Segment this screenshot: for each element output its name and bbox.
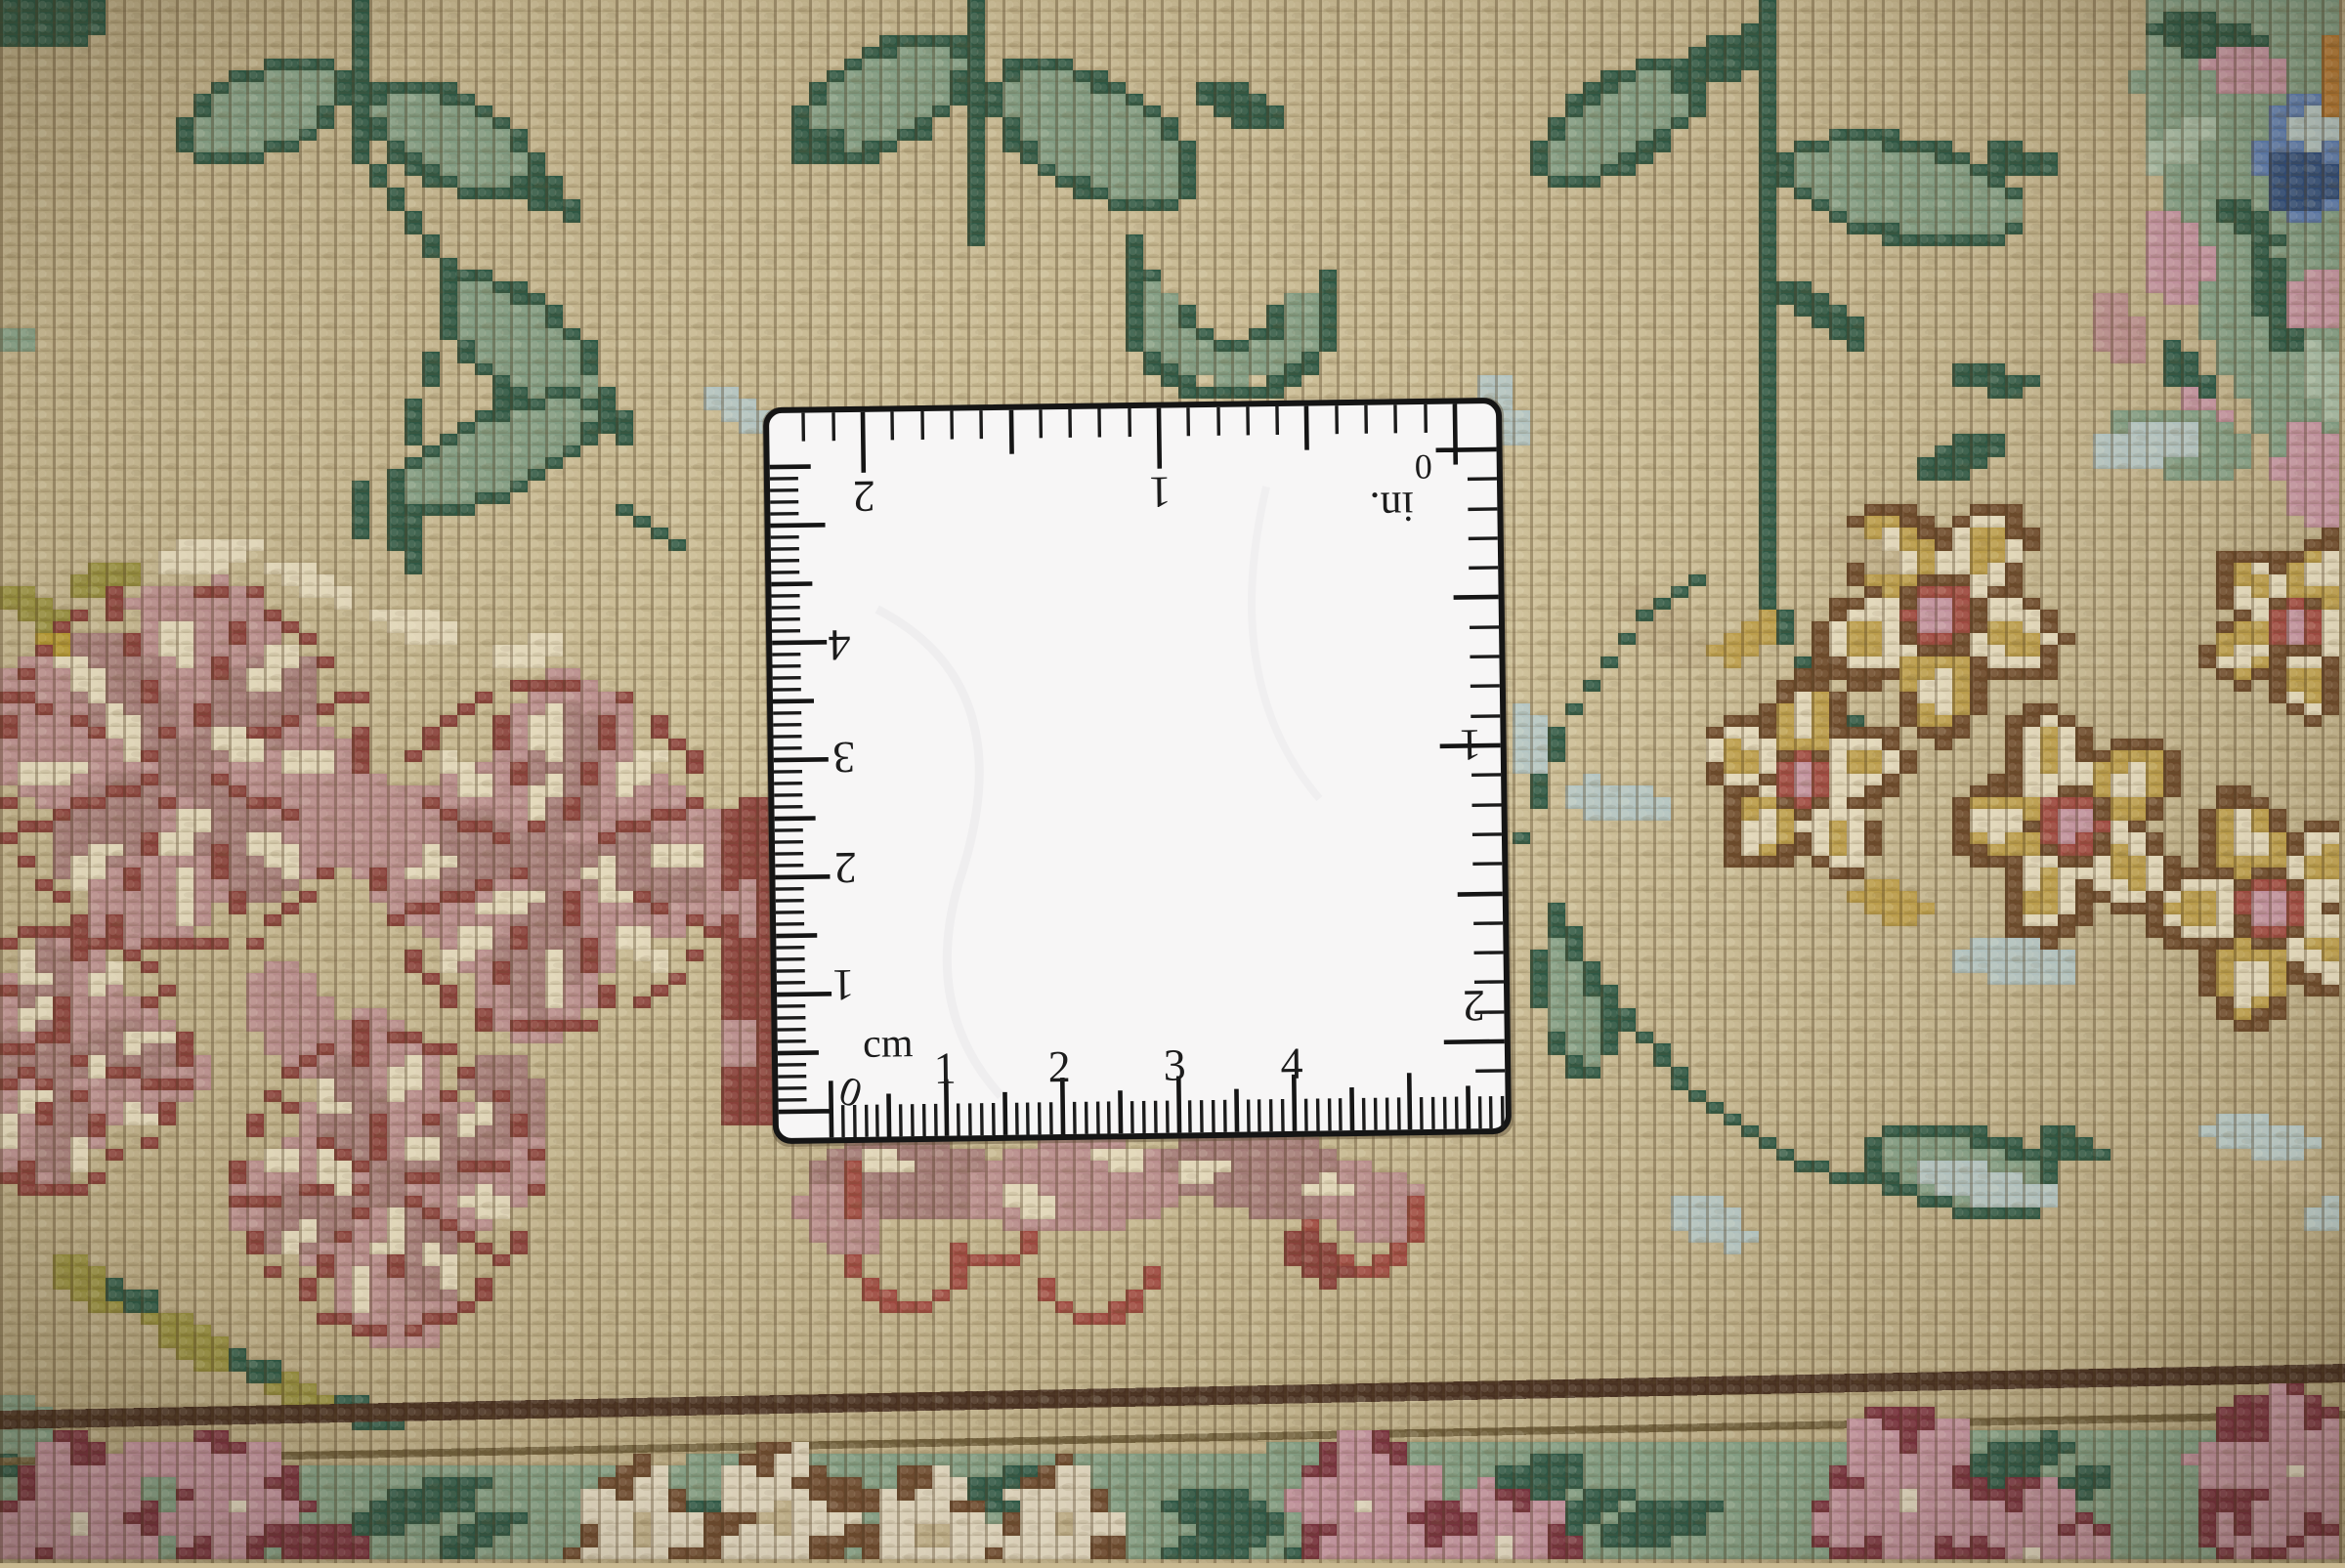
svg-text:1: 1	[1148, 468, 1172, 518]
svg-text:2: 2	[1462, 981, 1485, 1031]
svg-text:1: 1	[933, 1043, 957, 1093]
svg-text:2: 2	[852, 472, 875, 522]
svg-text:1: 1	[831, 960, 855, 1010]
svg-text:0: 0	[1415, 447, 1433, 487]
svg-text:4: 4	[828, 620, 851, 670]
svg-text:in.: in.	[1369, 483, 1414, 531]
svg-text:2: 2	[1047, 1041, 1071, 1091]
svg-text:3: 3	[1163, 1039, 1186, 1089]
svg-text:4: 4	[1280, 1038, 1303, 1088]
svg-text:1: 1	[1459, 720, 1482, 770]
svg-text:3: 3	[832, 733, 856, 783]
svg-text:cm: cm	[863, 1021, 914, 1067]
svg-text:2: 2	[833, 843, 857, 893]
